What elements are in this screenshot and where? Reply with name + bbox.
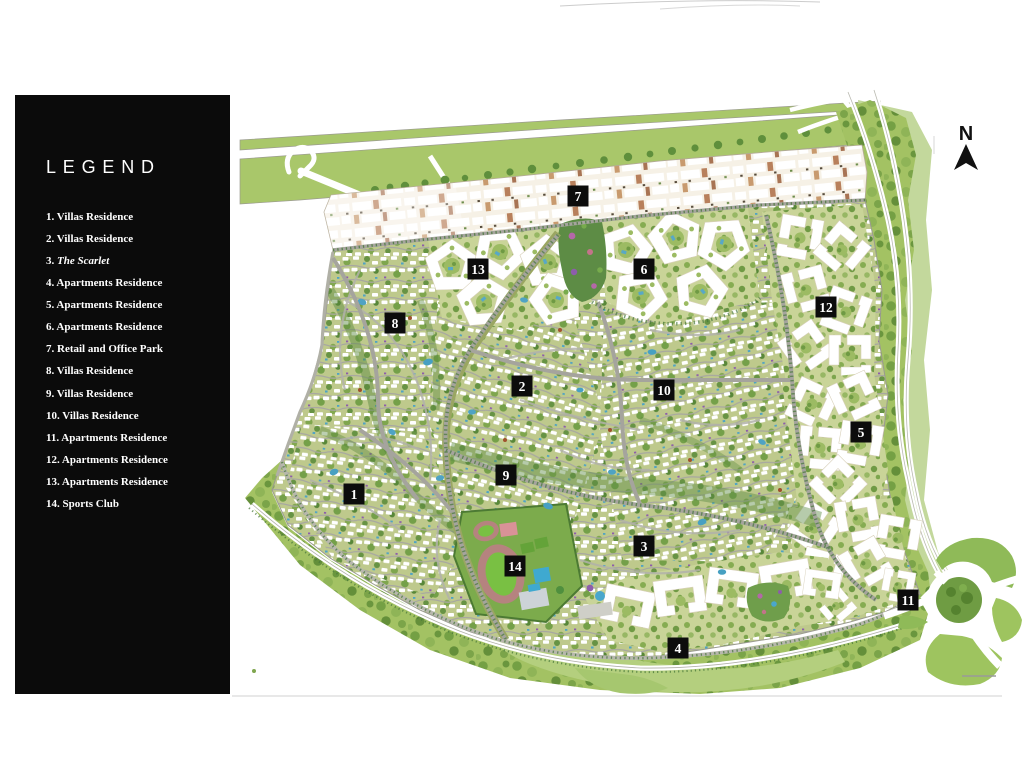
svg-text:6: 6: [641, 262, 648, 277]
svg-text:9: 9: [503, 468, 510, 483]
svg-text:1: 1: [351, 487, 358, 502]
svg-text:14: 14: [508, 559, 522, 574]
svg-text:8: 8: [392, 316, 399, 331]
svg-text:11: 11: [902, 593, 915, 608]
svg-text:2: 2: [519, 379, 526, 394]
svg-text:5: 5: [858, 425, 865, 440]
svg-text:7: 7: [575, 189, 582, 204]
svg-text:N: N: [959, 123, 973, 145]
svg-text:4: 4: [675, 641, 682, 656]
svg-text:12: 12: [819, 300, 833, 315]
svg-text:3: 3: [641, 539, 648, 554]
svg-text:10: 10: [657, 383, 671, 398]
svg-text:13: 13: [471, 262, 485, 277]
